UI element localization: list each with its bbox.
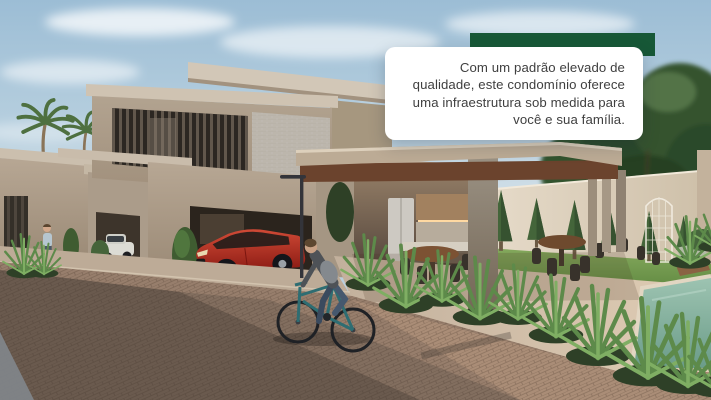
shrub-tall bbox=[326, 182, 354, 242]
column bbox=[616, 170, 626, 252]
column bbox=[602, 168, 611, 252]
info-card-line: Com um padrão elevado de bbox=[411, 59, 625, 76]
info-card-line: uma infraestrutura sob medida para bbox=[411, 94, 625, 111]
info-card-line: você e sua família. bbox=[411, 111, 625, 128]
shrub-highlight bbox=[174, 230, 190, 258]
info-card: Com um padrão elevado de qualidade, este… bbox=[385, 47, 643, 140]
condominium-render: Com um padrão elevado de qualidade, este… bbox=[0, 0, 711, 400]
column bbox=[588, 168, 597, 256]
info-card-line: qualidade, este condomínio oferece bbox=[411, 76, 625, 93]
rider-hair bbox=[305, 239, 317, 247]
